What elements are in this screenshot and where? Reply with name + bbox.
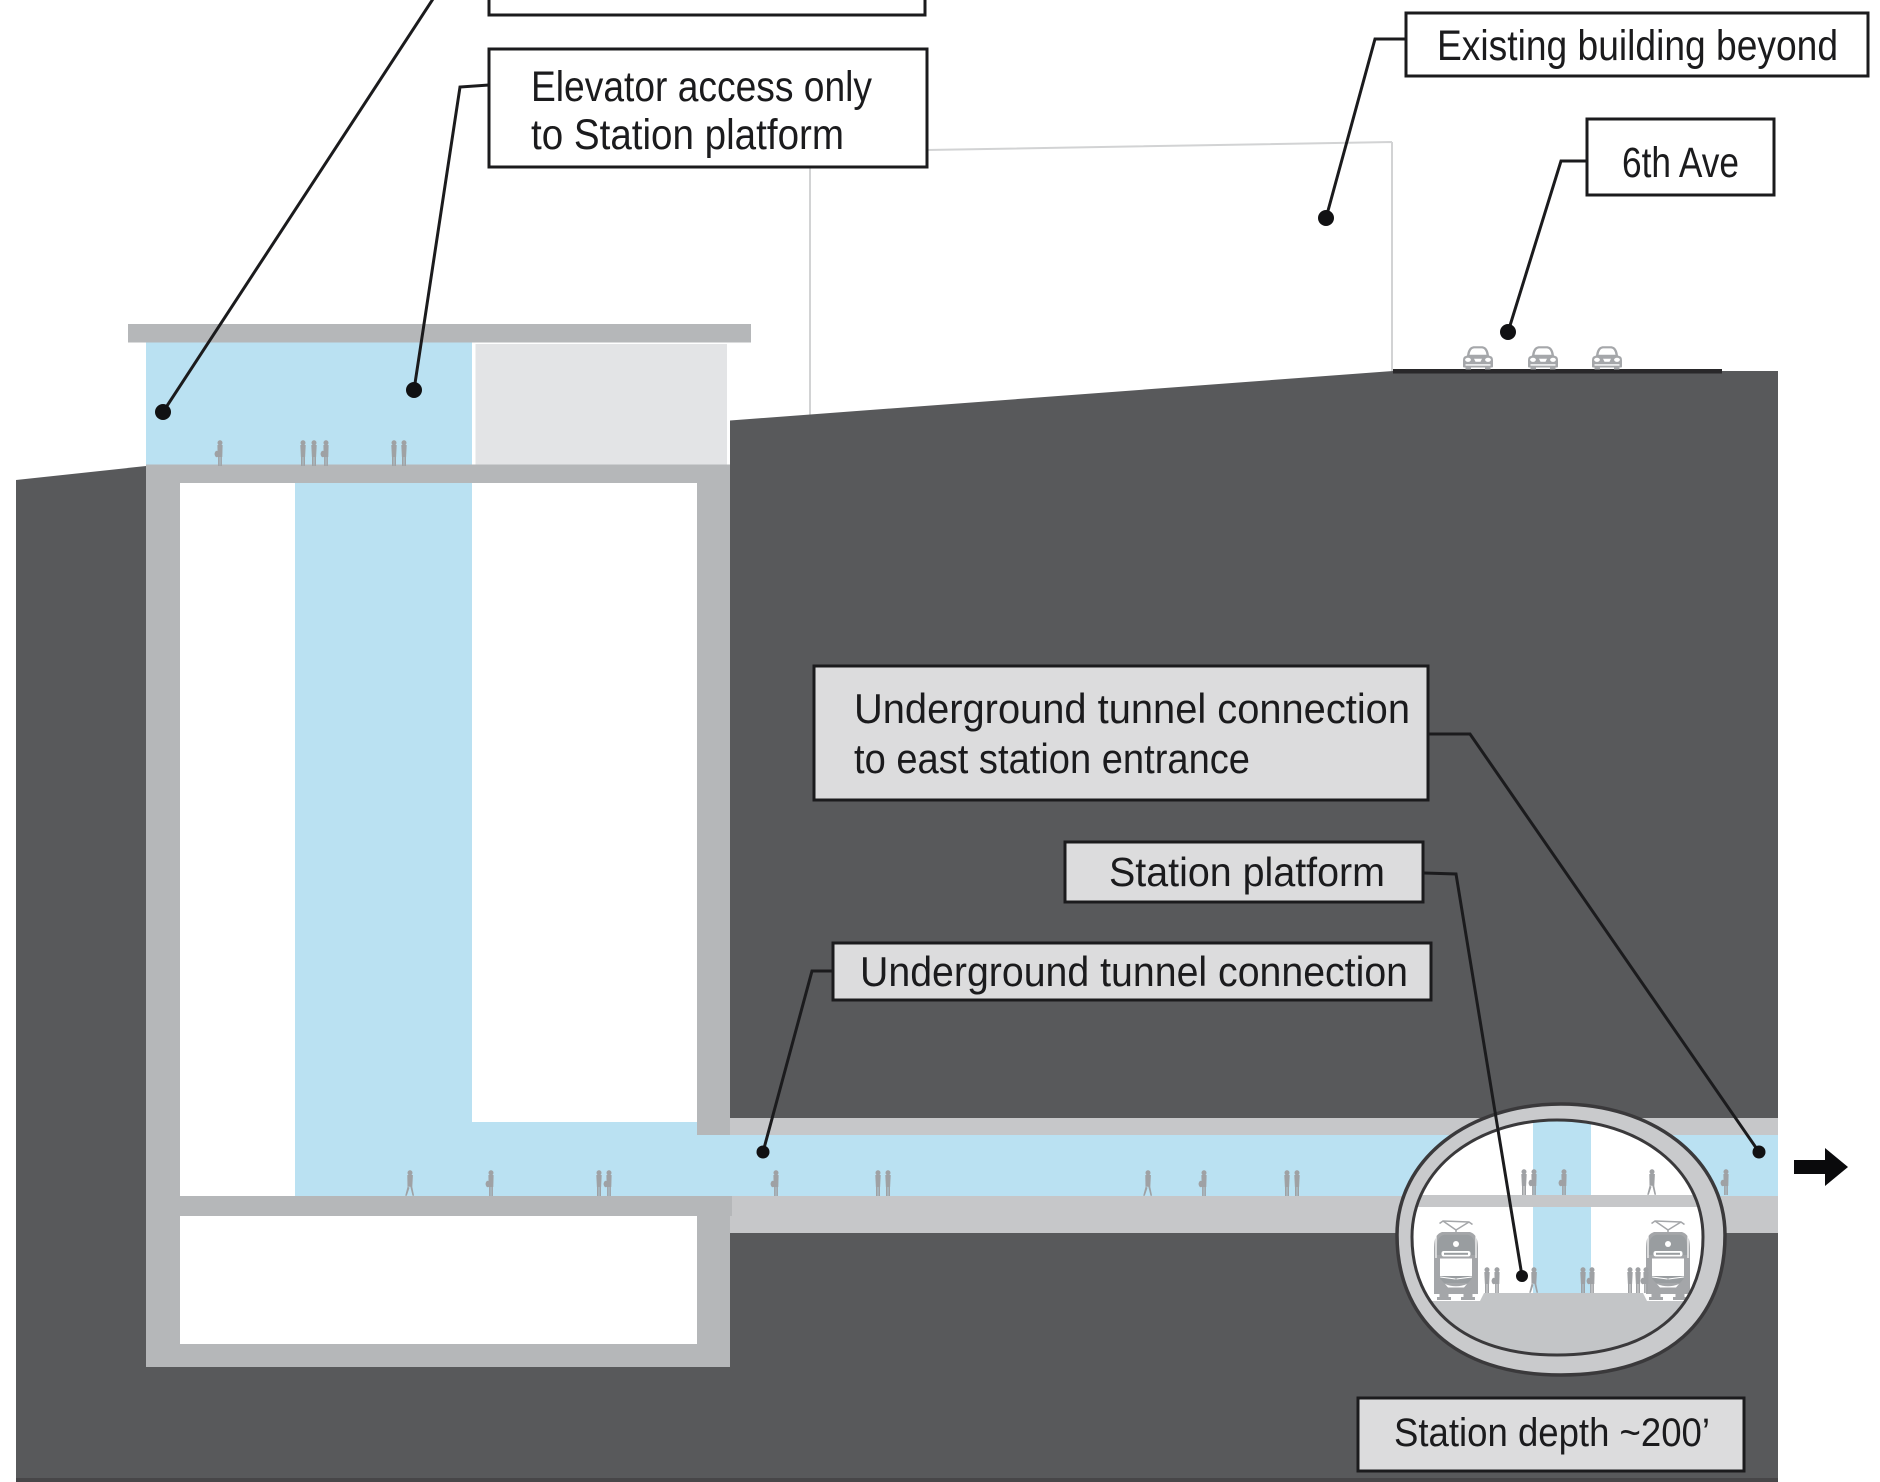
svg-text:Station platform: Station platform <box>1109 849 1385 895</box>
svg-text:Station depth ~200’: Station depth ~200’ <box>1394 1411 1710 1455</box>
svg-text:to east station entrance: to east station entrance <box>854 735 1250 782</box>
svg-text:Elevator access only: Elevator access only <box>531 63 872 111</box>
svg-text:Existing building beyond: Existing building beyond <box>1437 22 1838 70</box>
svg-text:to Station platform: to Station platform <box>531 111 844 159</box>
svg-text:Underground tunnel connection: Underground tunnel connection <box>854 685 1410 732</box>
svg-text:6th Ave: 6th Ave <box>1622 139 1739 187</box>
svg-text:Underground tunnel connection: Underground tunnel connection <box>860 948 1408 995</box>
